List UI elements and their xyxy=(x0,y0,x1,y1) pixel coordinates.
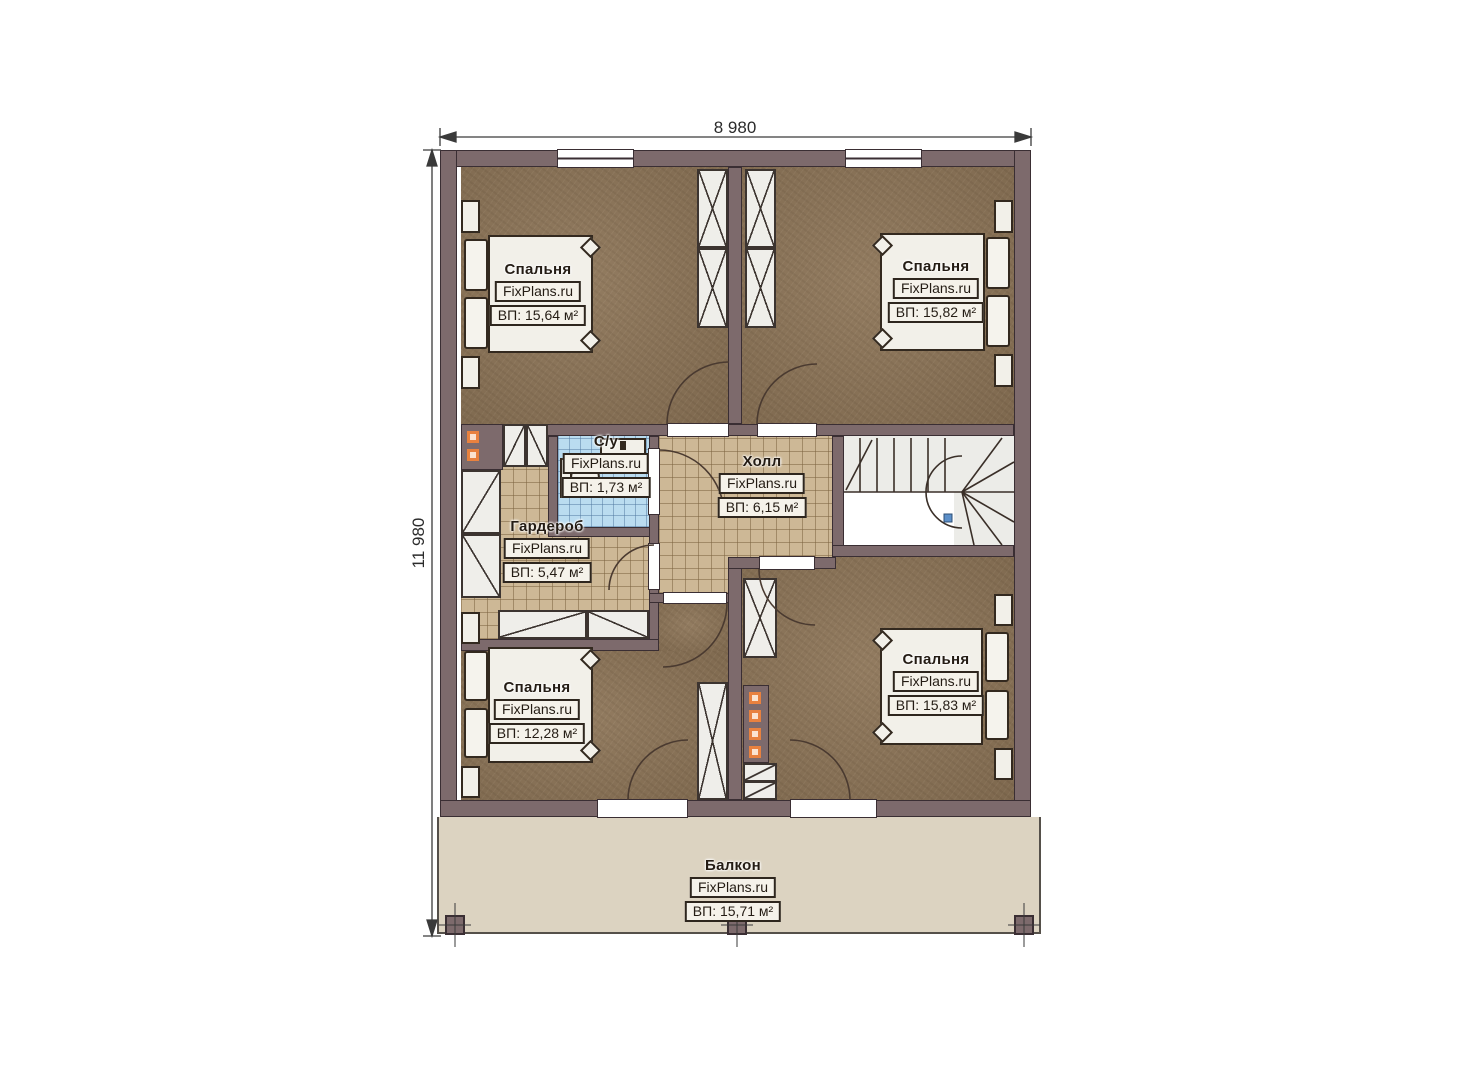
room-label-bedroom-bl: Спальня FixPlans.ru ВП: 12,28 м² xyxy=(489,679,585,744)
floor-bedroom-bl-nook xyxy=(659,603,728,651)
room-area: ВП: 15,82 м² xyxy=(888,302,984,323)
room-name: Спальня xyxy=(903,258,970,275)
nightstand xyxy=(994,748,1013,780)
chimney-flue xyxy=(749,692,761,704)
wall-between-top-bedrooms xyxy=(728,167,742,424)
wall-stairwell-bottom xyxy=(832,545,1014,557)
pillow xyxy=(464,239,488,291)
door-opening-bedroom-bl xyxy=(663,592,727,604)
chimney-flue xyxy=(749,710,761,722)
wardrobe-cabinet xyxy=(526,424,548,467)
room-name: Гардероб xyxy=(510,518,583,535)
room-area: ВП: 6,15 м² xyxy=(718,497,807,518)
nightstand xyxy=(994,200,1013,233)
room-name: Спальня xyxy=(903,651,970,668)
cabinet xyxy=(743,763,777,782)
chimney-flue xyxy=(467,431,479,443)
room-name: Холл xyxy=(743,453,782,470)
nightstand xyxy=(461,200,480,233)
room-name: Спальня xyxy=(505,261,572,278)
cabinet xyxy=(743,781,777,800)
window-top-right xyxy=(845,149,922,168)
wardrobe-cabinet xyxy=(745,169,776,248)
watermark-box: FixPlans.ru xyxy=(893,278,979,299)
nightstand xyxy=(461,356,480,389)
balcony-post xyxy=(1014,915,1034,935)
wardrobe-cabinet xyxy=(461,470,501,534)
nightstand xyxy=(994,354,1013,387)
door-opening-bedroom-tr xyxy=(757,423,817,437)
wardrobe-cabinet xyxy=(697,682,728,800)
room-label-bedroom-tr: Спальня FixPlans.ru ВП: 15,82 м² xyxy=(888,258,984,323)
stairwell-void xyxy=(844,492,954,545)
room-label-hall: Холл FixPlans.ru ВП: 6,15 м² xyxy=(718,453,807,518)
balcony-door-left xyxy=(597,799,688,818)
room-label-wardrobe: Гардероб FixPlans.ru ВП: 5,47 м² xyxy=(503,518,592,583)
watermark-box: FixPlans.ru xyxy=(719,473,805,494)
door-opening-bedroom-br xyxy=(759,556,815,570)
watermark-box: FixPlans.ru xyxy=(504,538,590,559)
pillow xyxy=(464,297,488,349)
balcony-post xyxy=(445,915,465,935)
room-label-balcony: Балкон FixPlans.ru ВП: 15,71 м² xyxy=(685,857,781,922)
wardrobe-cabinet xyxy=(743,578,777,658)
balcony-door-right xyxy=(790,799,877,818)
watermark-box: FixPlans.ru xyxy=(494,699,580,720)
pillow xyxy=(985,690,1009,740)
floor-hall-lower xyxy=(659,569,728,593)
watermark-box: FixPlans.ru xyxy=(893,671,979,692)
wardrobe-cabinet xyxy=(697,248,728,328)
room-area: ВП: 15,64 м² xyxy=(490,305,586,326)
pillow xyxy=(986,237,1010,289)
room-area: ВП: 15,83 м² xyxy=(888,695,984,716)
nightstand xyxy=(461,612,480,644)
room-area: ВП: 1,73 м² xyxy=(562,477,651,498)
room-area: ВП: 5,47 м² xyxy=(503,562,592,583)
room-area: ВП: 12,28 м² xyxy=(489,723,585,744)
dimension-height-label: 11 980 xyxy=(409,518,429,569)
pillow xyxy=(985,632,1009,682)
wall-stairwell-left xyxy=(832,436,844,557)
watermark-box: FixPlans.ru xyxy=(495,281,581,302)
wardrobe-cabinet xyxy=(587,610,649,639)
wall-exterior-left xyxy=(440,150,457,817)
room-name: С/у xyxy=(594,433,618,450)
door-opening-bedroom-tl xyxy=(667,423,729,437)
room-area: ВП: 15,71 м² xyxy=(685,901,781,922)
wall-between-bottom-bedrooms xyxy=(728,557,742,800)
door-opening-wardrobe xyxy=(648,543,660,590)
chimney-flue xyxy=(467,449,479,461)
room-label-bedroom-br: Спальня FixPlans.ru ВП: 15,83 м² xyxy=(888,651,984,716)
room-name: Спальня xyxy=(504,679,571,696)
wall-exterior-right xyxy=(1014,150,1031,817)
floor-plan-canvas: 8 980 11 980 xyxy=(0,0,1473,1080)
chimney-flue xyxy=(749,746,761,758)
nightstand xyxy=(994,594,1013,626)
room-label-bedroom-tl: Спальня FixPlans.ru ВП: 15,64 м² xyxy=(490,261,586,326)
wardrobe-cabinet xyxy=(697,169,728,248)
pillow xyxy=(464,708,488,758)
room-name: Балкон xyxy=(705,857,761,874)
wardrobe-cabinet xyxy=(498,610,587,639)
room-label-bathroom: С/у FixPlans.ru ВП: 1,73 м² xyxy=(562,433,651,498)
pillow xyxy=(464,651,488,701)
wardrobe-cabinet xyxy=(745,248,776,328)
chimney-flue xyxy=(749,728,761,740)
wall-exterior-top xyxy=(440,150,1031,167)
watermark-box: FixPlans.ru xyxy=(690,877,776,898)
dimension-width-label: 8 980 xyxy=(714,118,757,138)
wardrobe-cabinet xyxy=(503,424,526,467)
watermark-box: FixPlans.ru xyxy=(563,453,649,474)
pillow xyxy=(986,295,1010,347)
window-top-left xyxy=(557,149,634,168)
wall-exterior-bottom xyxy=(440,800,1031,817)
wardrobe-cabinet xyxy=(461,534,501,598)
nightstand xyxy=(461,766,480,798)
